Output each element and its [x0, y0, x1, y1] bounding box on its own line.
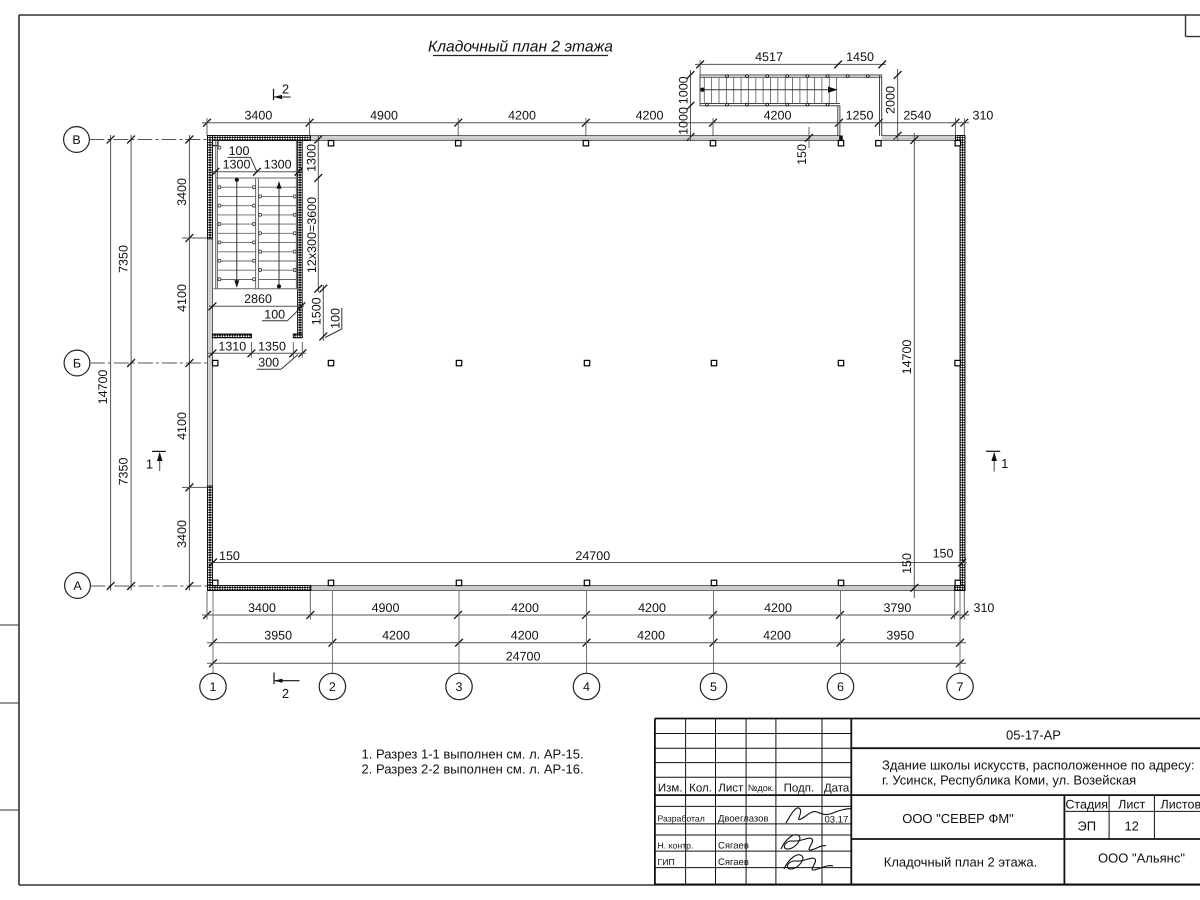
svg-text:7350: 7350 — [117, 458, 131, 486]
svg-text:Изм.: Изм. — [658, 783, 683, 795]
svg-text:4200: 4200 — [508, 108, 536, 122]
svg-text:12х300=3600: 12х300=3600 — [305, 197, 319, 273]
svg-text:1300: 1300 — [264, 158, 292, 172]
svg-text:ЭП: ЭП — [1077, 819, 1096, 834]
svg-text:Лист: Лист — [718, 783, 744, 795]
svg-text:3400: 3400 — [175, 178, 189, 206]
svg-text:100: 100 — [229, 144, 250, 158]
svg-text:300: 300 — [258, 356, 279, 370]
svg-text:Стадия: Стадия — [1065, 797, 1108, 811]
svg-text:1300: 1300 — [223, 158, 251, 172]
svg-text:4200: 4200 — [637, 629, 665, 643]
svg-text:150: 150 — [219, 549, 240, 563]
svg-text:2. Разрез 2-2 выполнен см. л.: 2. Разрез 2-2 выполнен см. л. АР-16. — [362, 761, 584, 776]
svg-text:3400: 3400 — [175, 520, 189, 548]
svg-text:3: 3 — [456, 680, 463, 694]
svg-text:4: 4 — [583, 680, 590, 694]
svg-text:4517: 4517 — [755, 50, 783, 64]
svg-text:2: 2 — [282, 686, 289, 701]
svg-text:310: 310 — [974, 601, 995, 615]
svg-text:Кладочный план 2 этажа.: Кладочный план 2 этажа. — [884, 855, 1038, 870]
svg-text:310: 310 — [973, 108, 994, 122]
svg-text:2: 2 — [329, 680, 336, 694]
svg-text:24700: 24700 — [506, 650, 541, 664]
svg-text:Здание школы искусств, располо: Здание школы искусств, расположенное по … — [882, 758, 1195, 773]
svg-text:Кладочный план 2 этажа: Кладочный план 2 этажа — [428, 39, 613, 56]
svg-text:№док.: №док. — [748, 783, 774, 793]
svg-text:6: 6 — [837, 680, 844, 694]
svg-text:150: 150 — [900, 553, 914, 574]
svg-text:4200: 4200 — [764, 108, 792, 122]
svg-text:2000: 2000 — [884, 86, 898, 114]
svg-text:1: 1 — [146, 457, 153, 472]
svg-text:1000: 1000 — [677, 76, 691, 104]
svg-text:Кол.: Кол. — [689, 783, 712, 795]
svg-text:1: 1 — [1001, 456, 1008, 471]
svg-text:3950: 3950 — [886, 629, 914, 643]
svg-text:150: 150 — [795, 144, 809, 165]
svg-text:1310: 1310 — [218, 340, 246, 354]
svg-text:1000: 1000 — [677, 107, 691, 135]
svg-text:Лист: Лист — [1118, 797, 1145, 811]
svg-text:2540: 2540 — [903, 108, 931, 122]
svg-text:ГИП: ГИП — [658, 857, 675, 867]
svg-text:1500: 1500 — [309, 297, 323, 325]
svg-text:4200: 4200 — [763, 629, 791, 643]
svg-text:1450: 1450 — [846, 50, 874, 64]
svg-text:5: 5 — [710, 680, 717, 694]
svg-text:7: 7 — [957, 680, 964, 694]
svg-text:ООО "Альянс": ООО "Альянс" — [1098, 851, 1185, 866]
svg-text:1250: 1250 — [846, 108, 874, 122]
svg-text:Разработал: Разработал — [658, 813, 705, 823]
svg-text:3400: 3400 — [244, 108, 272, 122]
svg-text:1: 1 — [210, 680, 217, 694]
svg-text:14700: 14700 — [900, 340, 914, 375]
svg-text:г. Усинск, Республика Коми, ул: г. Усинск, Республика Коми, ул. Возейска… — [882, 773, 1136, 788]
svg-text:3790: 3790 — [883, 601, 911, 615]
svg-text:Подп.: Подп. — [784, 783, 815, 795]
svg-text:Двоеглазов: Двоеглазов — [718, 813, 769, 824]
svg-text:1350: 1350 — [258, 340, 286, 354]
svg-text:Дата: Дата — [824, 783, 850, 795]
svg-text:3950: 3950 — [264, 629, 292, 643]
svg-text:4200: 4200 — [511, 629, 539, 643]
svg-text:ООО "СЕВЕР ФМ": ООО "СЕВЕР ФМ" — [902, 811, 1014, 826]
svg-text:4100: 4100 — [175, 284, 189, 312]
svg-text:100: 100 — [264, 308, 285, 322]
svg-text:7350: 7350 — [117, 245, 131, 273]
svg-text:03.17: 03.17 — [825, 815, 849, 826]
svg-text:В: В — [72, 133, 80, 147]
svg-text:4200: 4200 — [511, 601, 539, 615]
svg-text:4900: 4900 — [372, 601, 400, 615]
svg-text:4200: 4200 — [638, 601, 666, 615]
svg-text:1. Разрез 1-1 выполнен см. л.: 1. Разрез 1-1 выполнен см. л. АР-15. — [362, 747, 584, 762]
svg-text:12: 12 — [1124, 819, 1138, 834]
svg-text:05-17-АР: 05-17-АР — [1006, 728, 1061, 743]
svg-text:150: 150 — [933, 547, 954, 561]
svg-text:Листов: Листов — [1161, 797, 1200, 811]
svg-text:4900: 4900 — [370, 108, 398, 122]
svg-text:4100: 4100 — [175, 412, 189, 440]
svg-text:1300: 1300 — [305, 144, 319, 172]
svg-text:Н. контр.: Н. контр. — [658, 841, 694, 851]
svg-text:3400: 3400 — [248, 601, 276, 615]
svg-text:4200: 4200 — [382, 629, 410, 643]
svg-text:Сягаев: Сягаев — [718, 857, 749, 868]
svg-text:4200: 4200 — [636, 108, 664, 122]
svg-text:Сягаев: Сягаев — [718, 841, 749, 852]
svg-text:2860: 2860 — [244, 292, 272, 306]
svg-text:Б: Б — [73, 357, 81, 371]
svg-text:24700: 24700 — [575, 549, 610, 563]
svg-text:4200: 4200 — [764, 601, 792, 615]
svg-text:2: 2 — [282, 82, 289, 97]
svg-text:100: 100 — [329, 308, 343, 329]
svg-text:14700: 14700 — [96, 370, 110, 405]
svg-text:А: А — [73, 579, 82, 593]
